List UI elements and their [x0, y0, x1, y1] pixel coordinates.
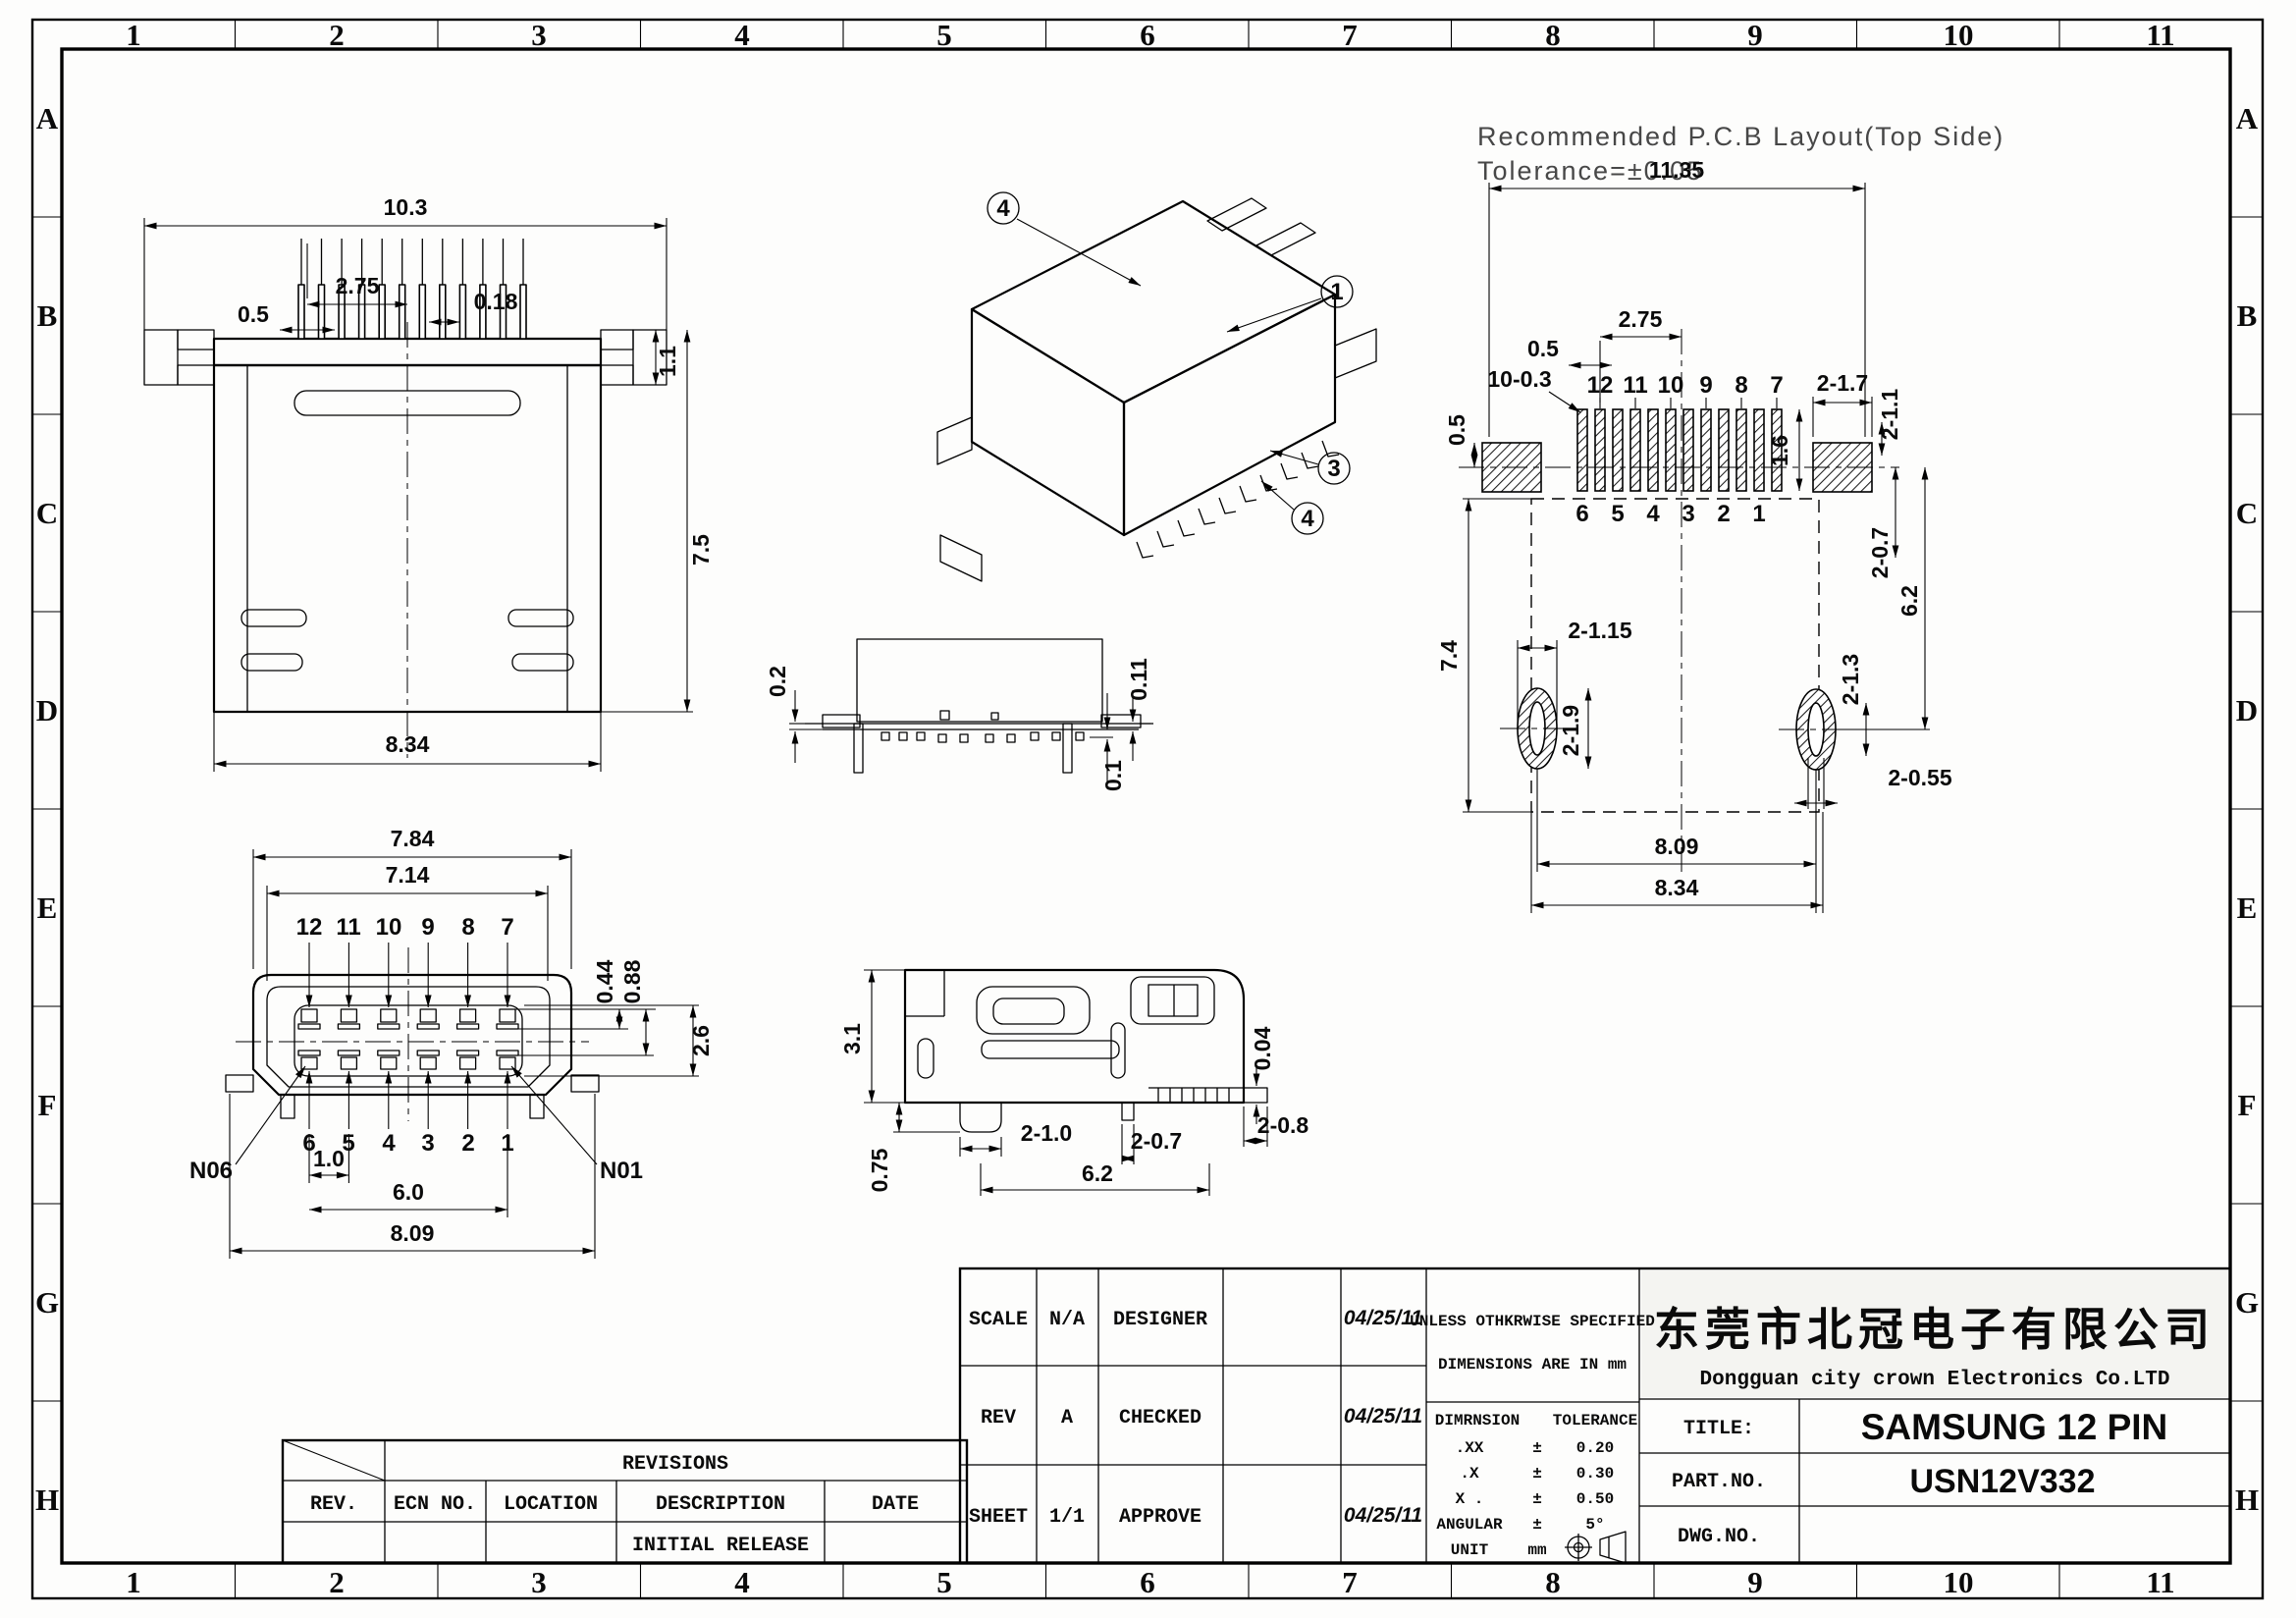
pin-number: 11 — [336, 914, 360, 941]
tol-row-dim: ANGULAR — [1436, 1516, 1503, 1534]
grid-col-label: 7 — [1342, 1565, 1358, 1599]
dim-pad-pitch: 0.88 — [619, 959, 645, 1003]
pin-number: 12 — [296, 914, 323, 941]
dim-pad-thickness: 0.11 — [1126, 658, 1151, 701]
dim-outer: 7.84 — [391, 826, 435, 851]
callout-balloon: 4 — [996, 195, 1010, 222]
pad-number: 12 — [1587, 372, 1614, 399]
grid-col-label: 10 — [1944, 18, 1974, 52]
dim-pitch: 2.75 — [1619, 306, 1663, 332]
grid-labels-bottom: 1 2 3 4 5 6 7 8 9 10 11 — [126, 1565, 2174, 1599]
spec-note-line1: UNLESS OTHKRWISE SPECIFIED — [1410, 1313, 1655, 1330]
grid-col-label: 5 — [936, 18, 952, 52]
tol-tol-header: TOLERANCE — [1553, 1412, 1637, 1429]
sheet-label: SHEET — [969, 1506, 1028, 1529]
grid-col-label: 3 — [531, 18, 547, 52]
grid-col-label: 6 — [1140, 18, 1155, 52]
dim-coplanarity: 0.1 — [1100, 760, 1126, 791]
dim-pin-tip: 0.18 — [474, 289, 518, 314]
part-no-value: USN12V332 — [1909, 1463, 2095, 1500]
approve-label: APPROVE — [1119, 1506, 1201, 1529]
dim-overall: 11.35 — [1649, 157, 1704, 183]
revisions-col-location: LOCATION — [504, 1493, 598, 1516]
dim-pad-width: 0.5 — [1527, 336, 1559, 361]
grid-col-label: 2 — [329, 18, 345, 52]
unit-value: mm — [1527, 1541, 1547, 1559]
dwg-no-label: DWG.NO. — [1678, 1526, 1760, 1548]
side-serration — [1148, 1088, 1244, 1103]
grid-col-label: 11 — [2146, 1565, 2174, 1599]
side-dimlines — [864, 970, 1267, 1196]
dim-height: 2.6 — [688, 1025, 714, 1056]
pad-number: 4 — [1646, 501, 1660, 527]
pcb-layout-view: Recommended P.C.B Layout(Top Side) Toler… — [1436, 122, 2004, 913]
grid-row-label: F — [2238, 1088, 2257, 1122]
tol-row-dim: X . — [1456, 1490, 1484, 1508]
dim-side-pad-height: 2-1.1 — [1877, 389, 1902, 441]
pad-number: 11 — [1623, 372, 1647, 399]
rev-label: REV — [981, 1407, 1016, 1429]
dim-foot-span: 8.09 — [391, 1220, 435, 1246]
grid-col-label: 9 — [1747, 1565, 1763, 1599]
title-value: SAMSUNG 12 PIN — [1861, 1407, 2168, 1447]
grid-row-label: B — [2237, 298, 2258, 333]
dim-slot-height: 2-1.9 — [1558, 705, 1583, 756]
grid-col-label: 7 — [1342, 18, 1358, 52]
grid-col-label: 3 — [531, 1565, 547, 1599]
grid-col-label: 5 — [936, 1565, 952, 1599]
dim-pad-offset: 0.44 — [592, 959, 617, 1003]
pin-number: 7 — [501, 914, 513, 941]
pin-number: 3 — [421, 1130, 434, 1157]
pin-label-right: N01 — [600, 1158, 643, 1184]
grid-row-label: C — [36, 496, 58, 530]
tol-dim-header: DIMRNSION — [1435, 1412, 1520, 1429]
revisions-col-ecn: ECN NO. — [394, 1493, 476, 1516]
grid-row-label: D — [2236, 693, 2258, 728]
dim-flange: 1.1 — [655, 346, 680, 377]
dim-row-span: 6.0 — [393, 1179, 424, 1205]
dim-side-pad: 2-1.7 — [1817, 370, 1868, 396]
grid-col-label: 10 — [1944, 1565, 1974, 1599]
dim-pin-pitch: 1.0 — [313, 1146, 345, 1171]
dim-hole-span: 6.2 — [1896, 585, 1922, 617]
dim-hole-height: 2-1.3 — [1838, 654, 1863, 705]
dim-pad-length: 1.6 — [1767, 435, 1792, 466]
unit-label: UNIT — [1451, 1541, 1489, 1559]
scale-label: SCALE — [969, 1309, 1028, 1331]
pad-number: 8 — [1735, 372, 1747, 399]
grid-row-label: F — [38, 1088, 57, 1122]
pin-number: 4 — [382, 1130, 396, 1157]
revisions-col-description: DESCRIPTION — [656, 1493, 785, 1516]
plus-minus-icon: ± — [1532, 1465, 1542, 1483]
title-block: SCALE N/A DESIGNER 04/25/11 REV A CHECKE… — [960, 1268, 2230, 1563]
pin-number: 10 — [376, 914, 402, 941]
pcb-title: Recommended P.C.B Layout(Top Side) — [1477, 122, 2004, 151]
grid-row-label: E — [37, 890, 58, 925]
grid-row-label: D — [36, 693, 58, 728]
rev-value: A — [1061, 1407, 1073, 1429]
designer-label: DESIGNER — [1113, 1309, 1207, 1331]
pad-number: 3 — [1682, 501, 1694, 527]
dim-tail: 2-0.8 — [1257, 1112, 1309, 1138]
grid-labels-top: 1 2 3 4 5 6 7 8 9 10 11 — [126, 18, 2174, 52]
dim-pin-width: 0.5 — [238, 301, 269, 327]
grid-row-label: C — [2236, 496, 2258, 530]
grid-row-label: A — [36, 101, 59, 135]
dim-span: 6.2 — [1082, 1160, 1113, 1186]
pcb-dimlines — [1463, 183, 1930, 913]
tol-row-value: 5° — [1585, 1516, 1604, 1534]
dim-clearance: 0.04 — [1250, 1026, 1275, 1070]
front-view: 7.84 7.14 12 11 10 9 8 7 6 5 4 3 2 1 N06… — [189, 826, 714, 1259]
checked-label: CHECKED — [1119, 1407, 1201, 1429]
company-name-en: Dongguan city crown Electronics Co.LTD — [1700, 1369, 2170, 1391]
dim-edge-offset: 0.5 — [1444, 414, 1469, 446]
tol-row-value: 0.50 — [1576, 1490, 1614, 1508]
drawing-sheet: 1 2 3 4 5 6 7 8 9 10 11 1 2 3 4 5 6 7 8 … — [0, 0, 2296, 1618]
revisions-col-rev: REV. — [310, 1493, 357, 1516]
pad-number: 2 — [1717, 501, 1730, 527]
pad-number: 6 — [1575, 501, 1588, 527]
dim-inner: 7.14 — [386, 862, 430, 888]
grid-row-label: H — [2235, 1483, 2259, 1517]
revisions-title: REVISIONS — [622, 1453, 728, 1476]
grid-col-label: 8 — [1545, 18, 1561, 52]
grid-col-label: 4 — [734, 1565, 750, 1599]
third-angle-projection-icon — [1565, 1532, 1626, 1563]
dim-standoff: 0.2 — [765, 666, 790, 697]
callout-balloon: 4 — [1301, 506, 1314, 532]
dim-slot-width: 2-1.15 — [1568, 618, 1631, 643]
dim-body-width: 8.34 — [1655, 875, 1699, 900]
grid-col-label: 11 — [2146, 18, 2174, 52]
grid-row-label: E — [2237, 890, 2258, 925]
grid-col-label: 2 — [329, 1565, 345, 1599]
pcb-pin-numbers: 12 11 10 9 8 7 6 5 4 3 2 1 — [1575, 372, 1783, 527]
pin-number: 1 — [501, 1130, 513, 1157]
checked-date: 04/25/11 — [1344, 1405, 1422, 1428]
plus-minus-icon: ± — [1532, 1439, 1542, 1457]
pad-number: 10 — [1658, 372, 1684, 399]
plus-minus-icon: ± — [1532, 1516, 1542, 1534]
pin-number: 8 — [461, 914, 474, 941]
title-label: TITLE: — [1683, 1418, 1754, 1440]
dim-leg: 2-1.0 — [1021, 1120, 1072, 1146]
scale-value: N/A — [1049, 1309, 1085, 1331]
grid-row-label: H — [35, 1483, 59, 1517]
grid-row-label: A — [2236, 101, 2259, 135]
pin-number: 2 — [461, 1130, 474, 1157]
profile-pads — [881, 711, 1084, 742]
plus-minus-icon: ± — [1532, 1490, 1542, 1508]
dim-hole-offset: 2-0.7 — [1867, 527, 1893, 578]
profile-dimlines — [789, 690, 1150, 785]
callout-balloon: 3 — [1327, 456, 1340, 482]
pin-label-left: N06 — [189, 1158, 233, 1184]
dim-foot: 0.75 — [867, 1148, 892, 1192]
iso-callouts: 4 1 3 4 — [988, 192, 1353, 534]
pad-number: 1 — [1752, 501, 1765, 527]
company-name-cn: 东莞市北冠电子有限公司 — [1654, 1303, 2216, 1356]
dim-hole-width: 2-0.55 — [1888, 765, 1951, 790]
pad-number: 5 — [1611, 501, 1624, 527]
approve-date: 04/25/11 — [1344, 1504, 1422, 1527]
top-view: 10.3 2.75 0.5 0.18 1.1 7.5 8.34 — [144, 194, 714, 772]
profile-view: 0.2 0.11 0.1 — [765, 639, 1153, 791]
pcb-holes — [1500, 688, 1853, 770]
grid-col-label: 6 — [1140, 1565, 1155, 1599]
grid-col-label: 8 — [1545, 1565, 1561, 1599]
dim-height: 3.1 — [839, 1023, 865, 1054]
pad-number: 9 — [1699, 372, 1712, 399]
tol-row-value: 0.30 — [1576, 1465, 1614, 1483]
pin-number: 9 — [421, 914, 434, 941]
dim-body-width: 8.34 — [386, 731, 430, 757]
drawing-canvas: 1 2 3 4 5 6 7 8 9 10 11 1 2 3 4 5 6 7 8 … — [0, 0, 2296, 1618]
grid-row-label: B — [37, 298, 58, 333]
grid-col-label: 9 — [1747, 18, 1763, 52]
dim-height: 7.5 — [688, 534, 714, 566]
dim-body-depth: 7.4 — [1436, 640, 1462, 672]
pcb-pads — [1577, 409, 1782, 491]
spec-note-line2: DIMENSIONS ARE IN mm — [1438, 1356, 1627, 1374]
pad-number: 7 — [1770, 372, 1783, 399]
callout-balloon: 1 — [1330, 279, 1343, 305]
side-view: 3.1 0.75 2-1.0 2-0.7 2-0.8 6.2 0.04 — [839, 970, 1308, 1196]
grid-col-label: 1 — [126, 1565, 141, 1599]
revisions-table: REVISIONS REV. ECN NO. LOCATION DESCRIPT… — [283, 1440, 967, 1563]
dim-hole-pitch: 8.09 — [1655, 834, 1699, 859]
grid-row-label: G — [35, 1285, 59, 1320]
isometric-view: 4 1 3 4 — [937, 192, 1376, 581]
dim-pitch: 2.75 — [336, 273, 380, 298]
tol-row-dim: .X — [1460, 1465, 1479, 1483]
sheet-value: 1/1 — [1049, 1506, 1085, 1529]
front-view-dimlines — [230, 849, 699, 1259]
part-no-label: PART.NO. — [1672, 1471, 1766, 1493]
revision-description: INITIAL RELEASE — [632, 1535, 809, 1557]
iso-pins — [1137, 441, 1339, 558]
dim-tab: 2-0.7 — [1131, 1128, 1182, 1154]
tol-row-dim: .XX — [1456, 1439, 1484, 1457]
tolerance-table: DIMRNSION TOLERANCE .XX ± 0.20 .X ± 0.30… — [1435, 1412, 1637, 1563]
dim-overall: 10.3 — [384, 194, 428, 220]
grid-row-label: G — [2235, 1285, 2259, 1320]
revisions-col-date: DATE — [872, 1493, 919, 1516]
dim-pads: 10-0.3 — [1487, 366, 1551, 392]
grid-col-label: 1 — [126, 18, 141, 52]
tol-row-value: 0.20 — [1576, 1439, 1614, 1457]
grid-col-label: 4 — [734, 18, 750, 52]
